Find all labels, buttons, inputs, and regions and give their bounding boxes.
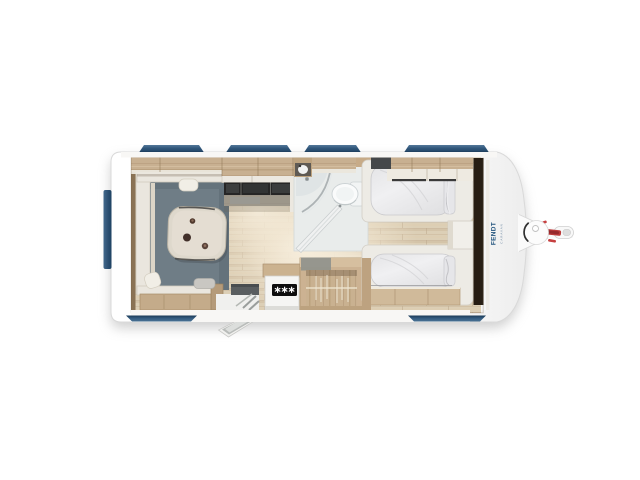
svg-text:FENDT: FENDT [491,222,498,245]
svg-text:CARAVAN: CARAVAN [500,223,504,243]
